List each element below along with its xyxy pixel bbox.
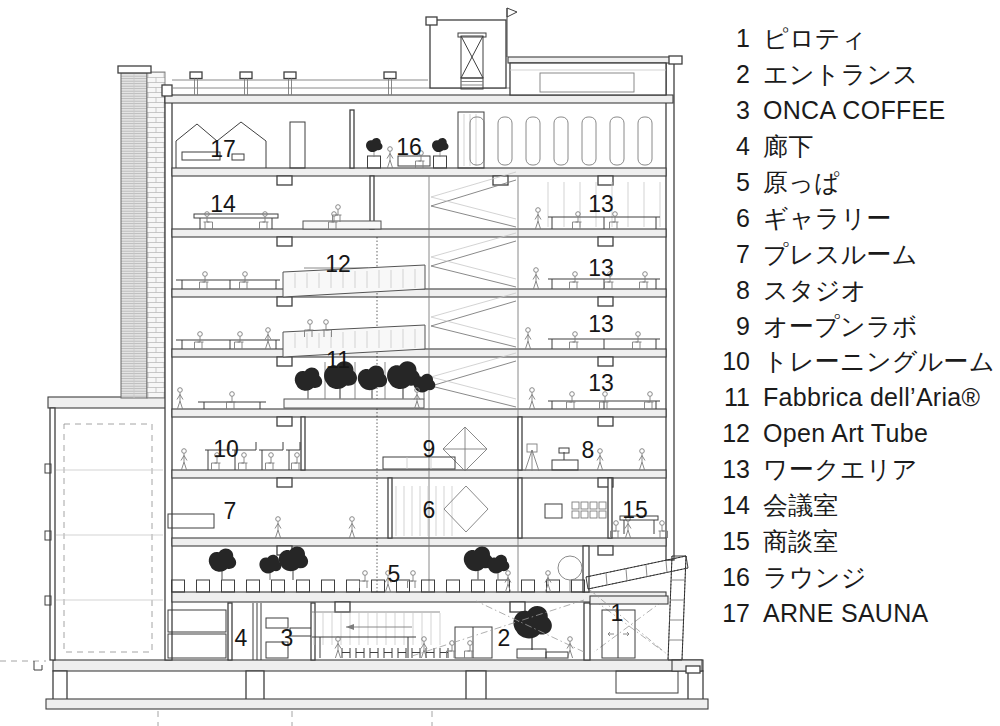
section-label-12: 12 <box>325 251 351 277</box>
section-label-11: 11 <box>326 347 350 373</box>
legend-item-fabbrica: 11Fabbrica dell’Aria® <box>716 380 996 416</box>
legend-number: 10 <box>716 349 750 374</box>
legend-number: 16 <box>716 565 750 590</box>
legend-label: トレーニングルーム <box>763 349 995 374</box>
section-label-5: 5 <box>388 561 401 587</box>
section-label-8: 8 <box>582 437 595 463</box>
legend-item-lounge: 16ラウンジ <box>716 559 996 595</box>
section-label-3: 3 <box>281 625 294 651</box>
legend-label: Fabbrica dell’Aria® <box>763 385 980 410</box>
legend-number: 1 <box>716 26 750 51</box>
architectural-section-page: 17 16 14 13 12 13 13 11 13 10 9 8 7 6 15… <box>0 0 1000 726</box>
legend-item-press-room: 7プレスルーム <box>716 236 996 272</box>
section-label-13-5f: 13 <box>588 370 614 396</box>
legend-item-arne-sauna: 17ARNE SAUNA <box>716 595 996 631</box>
section-label-10: 10 <box>213 436 239 462</box>
section-label-13-6f: 13 <box>588 311 614 337</box>
room-legend: 1ピロティ 2エントランス 3ONCA COFFEE 4廊下 5原っぱ 6ギャラ… <box>716 21 996 631</box>
section-label-6: 6 <box>423 497 436 523</box>
section-label-13-7f: 13 <box>588 255 614 281</box>
legend-label: 会議室 <box>763 493 839 518</box>
legend-number: 4 <box>716 134 750 159</box>
legend-number: 11 <box>716 385 750 410</box>
legend-item-onca-coffee: 3ONCA COFFEE <box>716 93 996 129</box>
section-label-9: 9 <box>423 436 436 462</box>
legend-number: 8 <box>716 278 750 303</box>
legend-number: 9 <box>716 314 750 339</box>
fabbrica-planting <box>284 361 435 408</box>
legend-number: 14 <box>716 493 750 518</box>
legend-label: ギャラリー <box>763 206 892 231</box>
section-label-1: 1 <box>611 600 624 626</box>
penthouse <box>508 56 682 95</box>
left-annex <box>45 397 166 660</box>
legend-item-entrance: 2エントランス <box>716 57 996 93</box>
legend-label: Open Art Tube <box>763 421 928 446</box>
legend-label: オープンラボ <box>763 314 918 339</box>
legend-number: 3 <box>716 98 750 123</box>
section-label-15: 15 <box>622 497 648 523</box>
section-label-2: 2 <box>498 625 511 651</box>
legend-item-gallery: 6ギャラリー <box>716 200 996 236</box>
legend-number: 7 <box>716 242 750 267</box>
legend-label: エントランス <box>763 62 918 87</box>
legend-item-sales-room: 15商談室 <box>716 523 996 559</box>
legend-number: 15 <box>716 529 750 554</box>
legend-item-harappa: 5原っぱ <box>716 165 996 201</box>
legend-number: 5 <box>716 170 750 195</box>
legend-label: 廊下 <box>763 134 814 159</box>
section-label-4: 4 <box>235 625 248 651</box>
legend-label: プレスルーム <box>763 242 918 267</box>
legend-label: 商談室 <box>763 529 839 554</box>
legend-item-corridor: 4廊下 <box>716 129 996 165</box>
legend-label: 原っぱ <box>763 170 840 195</box>
foundation <box>0 660 708 726</box>
legend-item-studio: 8スタジオ <box>716 272 996 308</box>
legend-item-meeting-room: 14会議室 <box>716 488 996 524</box>
stair-tower <box>426 8 517 89</box>
legend-number: 12 <box>716 421 750 446</box>
legend-label: スタジオ <box>763 278 867 303</box>
section-label-14: 14 <box>210 191 236 217</box>
service-tower <box>118 66 165 398</box>
terrace-planters <box>172 546 585 592</box>
legend-item-training-room: 10トレーニングルーム <box>716 344 996 380</box>
legend-number: 17 <box>716 601 750 626</box>
entrance-canopy <box>586 556 688 660</box>
legend-number: 6 <box>716 206 750 231</box>
legend-number: 13 <box>716 457 750 482</box>
legend-item-piloti: 1ピロティ <box>716 21 996 57</box>
legend-label: ONCA COFFEE <box>763 98 946 123</box>
legend-item-open-art-tube: 12Open Art Tube <box>716 416 996 452</box>
legend-number: 2 <box>716 62 750 87</box>
legend-label: ARNE SAUNA <box>763 601 929 626</box>
section-label-7: 7 <box>224 498 237 524</box>
section-label-17: 17 <box>210 136 236 162</box>
legend-label: ラウンジ <box>763 565 867 590</box>
rooftop <box>172 8 682 95</box>
legend-item-open-lab: 9オープンラボ <box>716 308 996 344</box>
legend-item-work-area: 13ワークエリア <box>716 452 996 488</box>
legend-label: ピロティ <box>763 26 867 51</box>
legend-label: ワークエリア <box>763 457 918 482</box>
section-label-13-8f: 13 <box>588 191 614 217</box>
section-label-16: 16 <box>396 134 422 160</box>
